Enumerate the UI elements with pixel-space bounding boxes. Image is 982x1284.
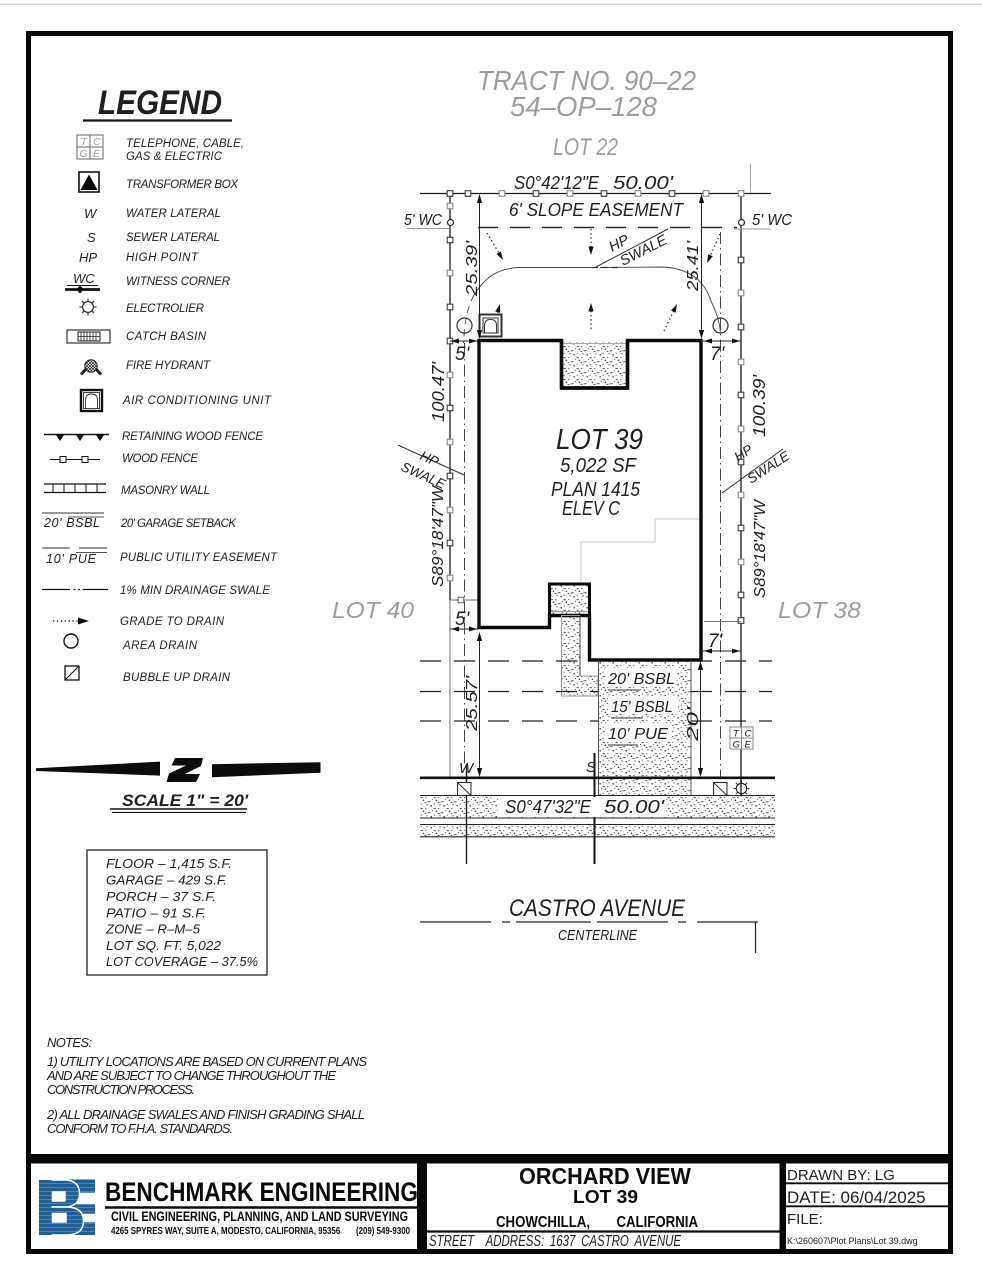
svg-text:S: S: [586, 759, 596, 776]
svg-text:5': 5': [455, 609, 471, 630]
svg-text:PORCH – 37 S.F.: PORCH – 37 S.F.: [106, 889, 216, 904]
svg-text:S89°18'47"W: S89°18'47"W: [430, 484, 447, 587]
svg-text:WOOD FENCE: WOOD FENCE: [122, 453, 198, 465]
svg-text:1% MIN DRAINAGE SWALE: 1% MIN DRAINAGE SWALE: [120, 585, 270, 597]
svg-text:7': 7': [708, 631, 724, 652]
svg-text:50.00': 50.00': [613, 173, 674, 193]
svg-text:TRANSFORMER BOX: TRANSFORMER BOX: [126, 179, 239, 191]
svg-text:LOT 40: LOT 40: [332, 597, 414, 623]
svg-text:W: W: [84, 206, 98, 221]
svg-text:7': 7': [710, 344, 726, 365]
svg-text:LOT SQ. FT. 5,022: LOT SQ. FT. 5,022: [106, 938, 222, 953]
svg-text:BUBBLE UP DRAIN: BUBBLE UP DRAIN: [123, 672, 231, 684]
svg-text:S: S: [87, 230, 96, 245]
svg-text:TELEPHONE, CABLE,: TELEPHONE, CABLE,: [126, 138, 244, 150]
svg-text:5,022 SF: 5,022 SF: [560, 455, 638, 477]
svg-text:LOT 39: LOT 39: [573, 1187, 638, 1207]
svg-text:ZONE – R–M–5: ZONE – R–M–5: [105, 922, 201, 937]
svg-text:25.39': 25.39': [464, 240, 481, 297]
svg-text:MASONRY WALL: MASONRY WALL: [121, 485, 210, 497]
svg-text:CIVIL ENGINEERING, PLANNING, A: CIVIL ENGINEERING, PLANNING, AND LAND SU…: [111, 1208, 408, 1224]
svg-text:LOT 22: LOT 22: [553, 134, 618, 161]
svg-text:E: E: [93, 148, 101, 160]
svg-text:ELEV C: ELEV C: [562, 498, 620, 520]
svg-text:5' WC: 5' WC: [404, 212, 442, 229]
svg-text:WATER LATERAL: WATER LATERAL: [126, 208, 221, 220]
svg-text:CATCH BASIN: CATCH BASIN: [126, 331, 207, 343]
svg-text:ELECTROLIER: ELECTROLIER: [126, 303, 204, 315]
svg-text:WITNESS CORNER: WITNESS CORNER: [126, 276, 230, 288]
svg-text:LOT 38: LOT 38: [778, 597, 861, 623]
svg-text:W: W: [459, 760, 475, 777]
svg-text:PATIO – 91 S.F.: PATIO – 91 S.F.: [106, 906, 206, 921]
svg-text:6' SLOPE EASEMENT: 6' SLOPE EASEMENT: [509, 200, 685, 220]
svg-text:K:\260607\Plot Plans\Lot 39.dw: K:\260607\Plot Plans\Lot 39.dwg: [787, 1236, 918, 1246]
svg-text:CONSTRUCTION PROCESS.: CONSTRUCTION PROCESS.: [47, 1082, 195, 1097]
svg-text:HP: HP: [79, 250, 97, 265]
svg-text:AIR CONDITIONING UNIT: AIR CONDITIONING UNIT: [122, 395, 272, 407]
svg-text:SCALE 1" = 20': SCALE 1" = 20': [122, 791, 249, 810]
svg-text:100.47': 100.47': [428, 361, 448, 422]
svg-text:SEWER LATERAL: SEWER LATERAL: [126, 232, 220, 244]
svg-text:FLOOR – 1,415 S.F.: FLOOR – 1,415 S.F.: [106, 856, 232, 871]
svg-text:20' GARAGE SETBACK: 20' GARAGE SETBACK: [120, 518, 237, 530]
svg-text:CASTRO AVENUE: CASTRO AVENUE: [509, 895, 686, 922]
svg-text:LEGEND: LEGEND: [98, 84, 222, 122]
svg-text:4265 SPYRES WAY, SUITE A, MODE: 4265 SPYRES WAY, SUITE A, MODESTO, CALIF…: [111, 1225, 410, 1237]
svg-text:S0°47'32"E: S0°47'32"E: [505, 797, 592, 817]
svg-text:50.00': 50.00': [604, 797, 665, 817]
svg-text:HIGH POINT: HIGH POINT: [126, 252, 199, 264]
svg-text:20' BSBL: 20' BSBL: [43, 516, 100, 530]
svg-text:E: E: [745, 740, 752, 751]
svg-text:CENTERLINE: CENTERLINE: [558, 928, 637, 944]
svg-text:20': 20': [685, 705, 702, 742]
svg-text:LOT 39: LOT 39: [556, 424, 643, 456]
svg-text:GAS & ELECTRIC: GAS & ELECTRIC: [126, 151, 223, 163]
svg-text:ORCHARD VIEW: ORCHARD VIEW: [519, 1163, 691, 1189]
svg-text:PUBLIC UTILITY EASEMENT: PUBLIC UTILITY EASEMENT: [120, 552, 278, 564]
svg-text:2) ALL DRAINAGE SWALES AND: 2) ALL DRAINAGE SWALES AND FINISH GRADIN…: [46, 1107, 365, 1122]
svg-text:G: G: [80, 148, 88, 160]
svg-text:GARAGE – 429 S.F.: GARAGE – 429 S.F.: [106, 873, 227, 888]
svg-text:GRADE TO DRAIN: GRADE TO DRAIN: [120, 616, 225, 628]
svg-text:AND ARE SUBJECT TO CHANGE: AND ARE SUBJECT TO CHANGE THROUGHOUT THE: [46, 1068, 336, 1083]
svg-text:S89°18'47"W: S89°18'47"W: [752, 498, 769, 598]
svg-text:RETAINING WOOD FENCE: RETAINING WOOD FENCE: [122, 431, 263, 443]
svg-text:10' PUE: 10' PUE: [46, 552, 97, 566]
svg-text:25.41': 25.41': [685, 240, 702, 292]
svg-text:5' WC: 5' WC: [752, 212, 792, 229]
svg-text:STREET ADDRESS: 1637 CASTRO AV: STREET ADDRESS: 1637 CASTRO AVENUE: [429, 1233, 681, 1250]
svg-text:100.39': 100.39': [749, 374, 769, 437]
svg-text:DATE: 06/04/2025: DATE: 06/04/2025: [787, 1188, 926, 1207]
svg-text:BENCHMARK ENGINEERING: BENCHMARK ENGINEERING: [105, 1177, 418, 1207]
svg-text:C: C: [93, 136, 101, 148]
svg-text:G: G: [733, 740, 740, 751]
svg-text:WC: WC: [73, 271, 95, 286]
svg-text:1) UTILITY LOCATIONS ARE B: 1) UTILITY LOCATIONS ARE BASED ON CURREN…: [47, 1054, 367, 1069]
svg-text:54–OP–128: 54–OP–128: [510, 91, 657, 122]
svg-text:FILE:: FILE:: [787, 1211, 823, 1228]
svg-text:S0°42'12"E: S0°42'12"E: [514, 173, 600, 193]
svg-text:AREA DRAIN: AREA DRAIN: [122, 640, 198, 652]
svg-text:FIRE HYDRANT: FIRE HYDRANT: [126, 360, 211, 372]
svg-text:LOT COVERAGE – 37.5%: LOT COVERAGE – 37.5%: [106, 954, 258, 969]
svg-text:C: C: [745, 729, 752, 740]
svg-text:CHOWCHILLA, CALIFORNIA: CHOWCHILLA, CALIFORNIA: [496, 1214, 698, 1231]
svg-text:15' BSBL: 15' BSBL: [611, 699, 673, 716]
svg-text:10' PUE: 10' PUE: [608, 726, 668, 743]
svg-text:25.57': 25.57': [464, 675, 481, 732]
svg-text:CONFORM TO F.H.A. STANDARDS: CONFORM TO F.H.A. STANDARDS.: [47, 1121, 233, 1136]
svg-text:5': 5': [455, 344, 471, 365]
svg-text:NOTES:: NOTES:: [47, 1035, 92, 1050]
svg-text:DRAWN BY: LG: DRAWN BY: LG: [787, 1167, 895, 1184]
svg-text:20' BSBL: 20' BSBL: [607, 671, 675, 688]
